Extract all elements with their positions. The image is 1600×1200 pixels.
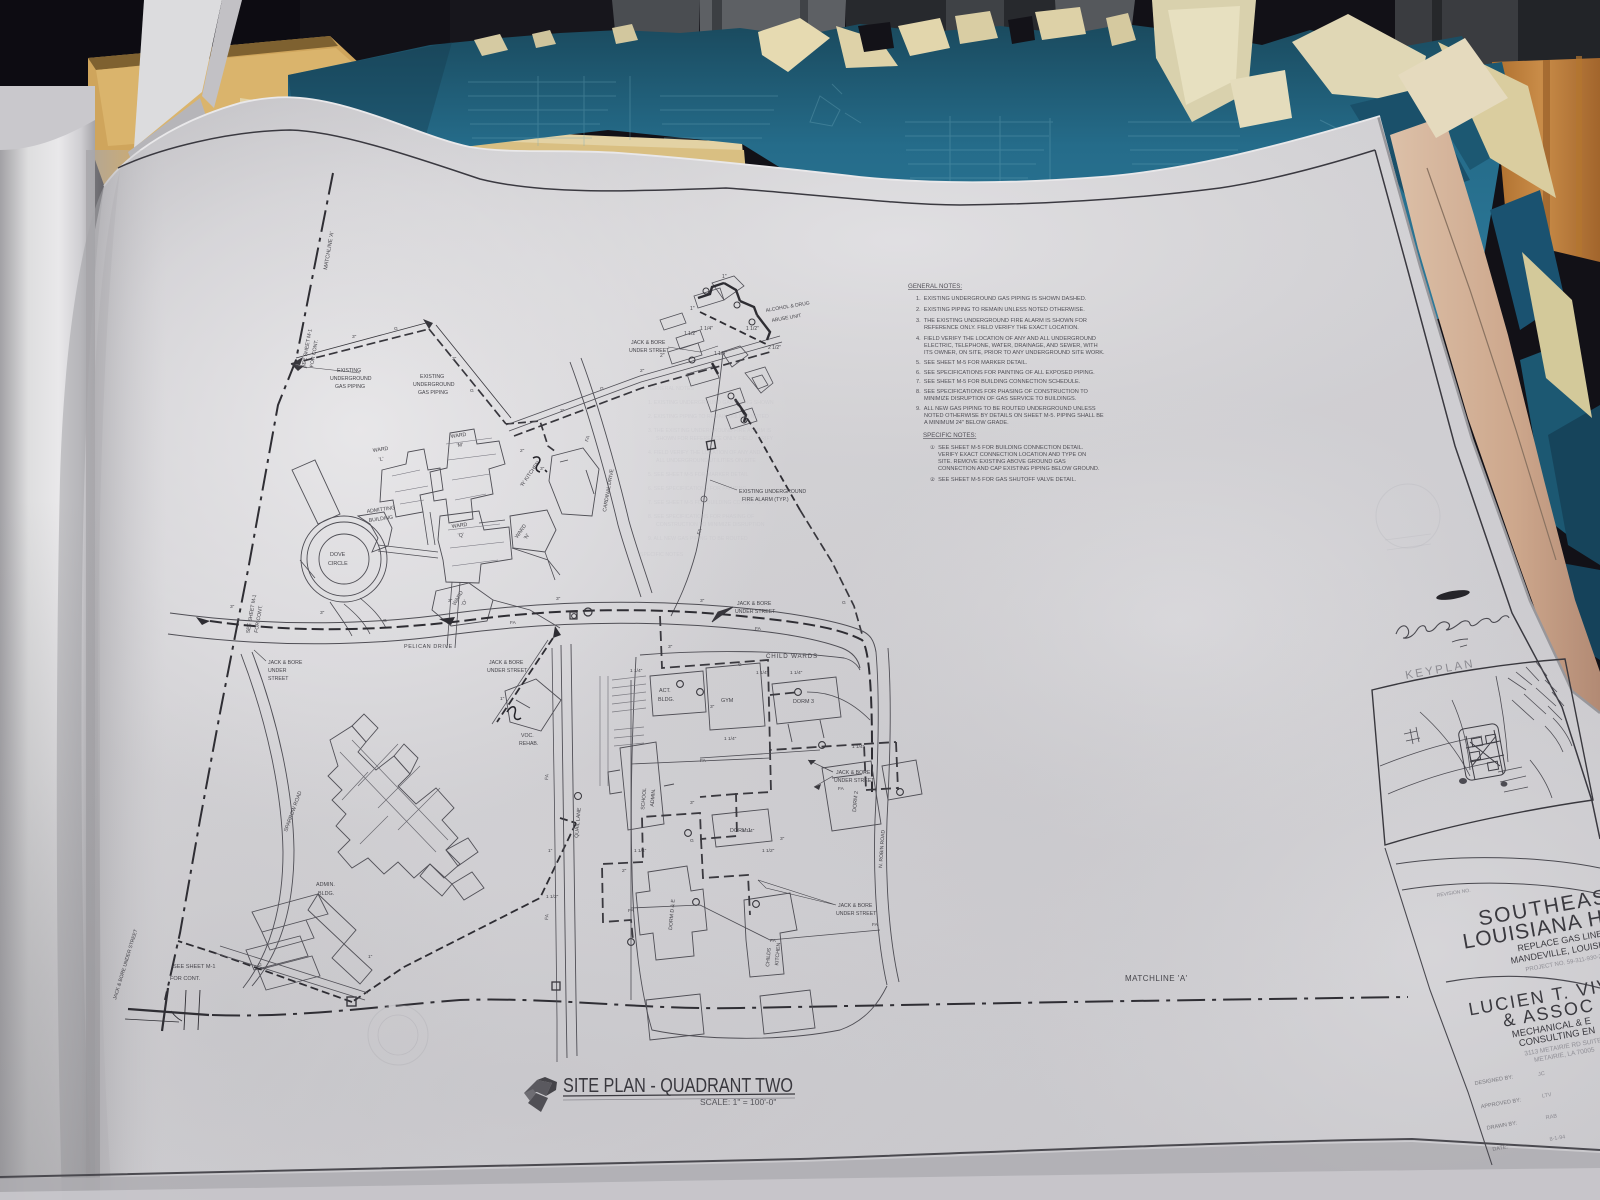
svg-text:CONNECTION AND CAP EXISTING PI: CONNECTION AND CAP EXISTING PIPING BELOW…	[938, 466, 1100, 472]
svg-text:6. SEE SPECIFICATIONS FOR PAI: 6. SEE SPECIFICATIONS FOR PAINTING OF AL…	[916, 370, 1095, 376]
svg-text:EXISTING: EXISTING	[420, 374, 444, 380]
svg-text:JACK & BORE: JACK & BORE	[631, 340, 666, 346]
svg-text:① SEE SHEET M-5 FOR BUILDING: ① SEE SHEET M-5 FOR BUILDING CONNECTION …	[930, 444, 1084, 451]
svg-text:8. SEE SPECIFICATIONS FOR PHA: 8. SEE SPECIFICATIONS FOR PHASING OF CON…	[916, 389, 1089, 395]
svg-text:9. ALL NEW GAS PIPING TO BE R: 9. ALL NEW GAS PIPING TO BE ROUTED UNDER…	[916, 406, 1096, 412]
svg-text:NOTED OTHERWISE BY DETAILS ON: NOTED OTHERWISE BY DETAILS ON SHEET M-5.…	[924, 413, 1104, 419]
svg-text:CHILD WARDS: CHILD WARDS	[766, 653, 818, 660]
svg-text:3": 3"	[556, 596, 561, 602]
svg-text:3": 3"	[320, 610, 325, 616]
svg-text:SPECIFIC NOTES:: SPECIFIC NOTES:	[923, 432, 977, 439]
svg-text:3": 3"	[700, 598, 705, 604]
svg-text:2": 2"	[520, 448, 525, 454]
svg-text:3": 3"	[448, 598, 453, 604]
svg-text:PELICAN DRIVE: PELICAN DRIVE	[404, 644, 453, 650]
svg-text:'L': 'L'	[378, 456, 384, 463]
svg-text:G: G	[738, 662, 742, 668]
svg-text:ACT.: ACT.	[659, 688, 671, 694]
svg-text:3": 3"	[452, 356, 457, 362]
svg-text:4. FIELD VERIFY THE LOCATION: 4. FIELD VERIFY THE LOCATION OF ANY AND …	[916, 336, 1096, 342]
svg-text:UNDER STREET: UNDER STREET	[836, 911, 877, 917]
svg-text:1 1/4": 1 1/4"	[742, 828, 755, 834]
svg-text:G: G	[383, 618, 387, 624]
svg-text:5. SEE SHEET M-5 FOR MARKER D: 5. SEE SHEET M-5 FOR MARKER DETAIL.	[916, 360, 1028, 366]
svg-text:3. THE EXISTING UNDERGROUND F: 3. THE EXISTING UNDERGROUND FIRE ALARM I…	[916, 318, 1087, 324]
svg-text:BLDG.: BLDG.	[658, 697, 674, 703]
svg-text:7. SEE SHEET M-5 FOR BUILDING: 7. SEE SHEET M-5 FOR BUILDING CONNECTION	[648, 500, 768, 506]
svg-text:GAS PIPING: GAS PIPING	[335, 384, 365, 390]
svg-text:UNDER STREET: UNDER STREET	[735, 609, 776, 615]
svg-text:A MINIMUM 24" BELOW GRADE.: A MINIMUM 24" BELOW GRADE.	[924, 420, 1009, 426]
svg-text:6. SEE SPECIFICATIONS FOR PAIN: 6. SEE SPECIFICATIONS FOR PAINTING	[648, 486, 746, 492]
svg-text:ADMIN.: ADMIN.	[316, 882, 335, 888]
svg-text:MATCHLINE 'A': MATCHLINE 'A'	[1125, 974, 1188, 983]
svg-text:FOR CONT.: FOR CONT.	[170, 976, 201, 982]
svg-text:GENERAL NOTES:: GENERAL NOTES:	[908, 283, 962, 290]
svg-text:1 1/2": 1 1/2"	[746, 326, 759, 332]
svg-text:FA: FA	[755, 626, 762, 632]
svg-text:1": 1"	[722, 274, 727, 280]
svg-text:2": 2"	[622, 868, 627, 874]
svg-text:SITE. REMOVE EXISTING ABOVE G: SITE. REMOVE EXISTING ABOVE GROUND GAS	[938, 459, 1066, 465]
svg-text:UNDERGROUND: UNDERGROUND	[413, 382, 455, 388]
svg-text:JACK & BORE: JACK & BORE	[737, 601, 772, 607]
svg-text:GYM: GYM	[721, 698, 734, 704]
svg-text:G: G	[842, 600, 846, 606]
svg-text:1 1/4": 1 1/4"	[700, 326, 713, 332]
svg-text:ELECTRIC, TELEPHONE, WATER, DR: ELECTRIC, TELEPHONE, WATER, DRAINAGE, AN…	[924, 343, 1098, 349]
svg-text:1": 1"	[548, 848, 553, 854]
svg-text:1 1/4": 1 1/4"	[852, 744, 865, 750]
svg-text:JACK & BORE: JACK & BORE	[268, 660, 303, 666]
svg-text:3": 3"	[230, 604, 235, 610]
svg-text:1 1/4": 1 1/4"	[724, 736, 737, 742]
svg-text:UNDER STREET: UNDER STREET	[629, 348, 670, 354]
svg-text:3": 3"	[540, 466, 545, 472]
svg-text:1. EXISTING UNDERGROUND GAS P: 1. EXISTING UNDERGROUND GAS PIPING IS SH…	[916, 296, 1087, 302]
svg-text:GENERAL NOTES: GENERAL NOTES	[650, 386, 694, 392]
svg-text:VERIFY EXACT CONNECTION LOCATI: VERIFY EXACT CONNECTION LOCATION AND TYP…	[938, 452, 1086, 458]
svg-text:ITS OWNER, ON SITE, PRIOR TO A: ITS OWNER, ON SITE, PRIOR TO ANY UNDERGR…	[924, 350, 1105, 356]
svg-text:1": 1"	[500, 696, 505, 702]
svg-text:1": 1"	[368, 954, 373, 960]
svg-text:VOC.: VOC.	[521, 733, 534, 739]
svg-text:FA: FA	[770, 938, 777, 944]
svg-text:8. SEE SPECIFICATIONS FOR PHAS: 8. SEE SPECIFICATIONS FOR PHASING OF	[648, 514, 754, 520]
svg-text:CONSTRUCTION TO MINIMIZE DISRU: CONSTRUCTION TO MINIMIZE DISRUPTION	[656, 522, 765, 528]
svg-text:STREET: STREET	[268, 676, 289, 682]
svg-text:'M': 'M'	[456, 442, 463, 449]
svg-text:JACK & BORE: JACK & BORE	[836, 770, 871, 776]
svg-text:4. FIELD VERIFY THE LOCATION O: 4. FIELD VERIFY THE LOCATION OF ANY AND	[648, 450, 761, 456]
svg-text:1 1/4": 1 1/4"	[634, 848, 647, 854]
svg-text:1 1/4": 1 1/4"	[790, 670, 803, 676]
svg-text:SCALE: 1" = 100'-0": SCALE: 1" = 100'-0"	[700, 1097, 776, 1107]
svg-text:G: G	[394, 326, 398, 332]
svg-text:1 1/2": 1 1/2"	[546, 894, 559, 900]
svg-text:② SEE SHEET M-5 FOR GAS SHUTO: ② SEE SHEET M-5 FOR GAS SHUTOFF VALVE DE…	[930, 476, 1077, 483]
svg-text:3": 3"	[780, 836, 785, 842]
svg-text:SEE SHEET M-1: SEE SHEET M-1	[173, 964, 215, 970]
svg-text:MINIMIZE DISRUPTION OF GAS SER: MINIMIZE DISRUPTION OF GAS SERVICE TO BU…	[924, 396, 1077, 402]
svg-text:1": 1"	[690, 306, 695, 312]
svg-text:GAS PIPING: GAS PIPING	[418, 390, 448, 396]
svg-text:1 1/2": 1 1/2"	[762, 848, 775, 854]
svg-text:G: G	[690, 838, 694, 844]
svg-text:REHAB.: REHAB.	[519, 741, 538, 747]
svg-text:FA: FA	[872, 922, 879, 928]
svg-text:UNDER: UNDER	[268, 668, 287, 674]
svg-text:9. ALL NEW GAS PIPING TO BE RO: 9. ALL NEW GAS PIPING TO BE ROUTED	[648, 536, 748, 542]
svg-text:'Q': 'Q'	[457, 532, 464, 539]
svg-text:3": 3"	[352, 334, 357, 340]
svg-text:SHOWN FOR REFERENCE ONLY FIELD: SHOWN FOR REFERENCE ONLY FIELD VERIFY	[656, 436, 774, 442]
svg-text:SPECIFIC NOTES: SPECIFIC NOTES	[640, 552, 684, 558]
svg-text:1 1/4": 1 1/4"	[630, 668, 643, 674]
svg-text:JC: JC	[1538, 1071, 1546, 1078]
svg-text:2": 2"	[640, 368, 645, 374]
svg-text:DOVE: DOVE	[330, 552, 346, 558]
svg-text:ALL UNDERGROUND UTILITIES ON S: ALL UNDERGROUND UTILITIES ON SITE	[656, 458, 756, 464]
svg-text:G: G	[470, 388, 474, 394]
svg-text:3. THE EXISTING UNDERGROUND FI: 3. THE EXISTING UNDERGROUND FIRE ALARM I…	[648, 428, 772, 434]
svg-text:JACK & BORE: JACK & BORE	[489, 660, 524, 666]
svg-text:5. SEE SHEET M-5 FOR MARKER DE: 5. SEE SHEET M-5 FOR MARKER DETAIL	[648, 472, 749, 478]
svg-text:FA: FA	[838, 786, 845, 792]
svg-text:JACK & BORE: JACK & BORE	[838, 903, 873, 909]
svg-text:2. EXISTING PIPING TO REMAIN U: 2. EXISTING PIPING TO REMAIN UNLESS NOTE…	[648, 414, 769, 420]
svg-text:1. EXISTING UNDERGROUND GAS PI: 1. EXISTING UNDERGROUND GAS PIPING SHOWN	[648, 400, 774, 406]
svg-text:2 1/2": 2 1/2"	[768, 345, 781, 351]
svg-text:3": 3"	[710, 704, 715, 710]
svg-text:3": 3"	[668, 644, 673, 650]
svg-text:REFERENCE ONLY. FIELD VERIFY: REFERENCE ONLY. FIELD VERIFY THE EXACT L…	[924, 325, 1079, 331]
svg-text:2. EXISTING PIPING TO REMAIN: 2. EXISTING PIPING TO REMAIN UNLESS NOTE…	[916, 307, 1085, 313]
svg-text:EXISTING UNDERGROUND: EXISTING UNDERGROUND	[739, 489, 806, 495]
svg-text:UNDER STREET: UNDER STREET	[487, 668, 528, 674]
svg-text:1 1/4": 1 1/4"	[756, 670, 769, 676]
svg-text:1 1/2": 1 1/2"	[684, 331, 697, 337]
svg-text:1 1/4": 1 1/4"	[714, 351, 727, 357]
svg-text:UNDER STREET: UNDER STREET	[834, 778, 875, 784]
svg-text:3": 3"	[690, 800, 695, 806]
svg-text:BLDG.: BLDG.	[318, 891, 334, 897]
svg-text:UNDERGROUND: UNDERGROUND	[330, 376, 372, 382]
svg-text:DORM 3: DORM 3	[793, 699, 814, 705]
svg-text:7. SEE SHEET M-5 FOR BUILDING: 7. SEE SHEET M-5 FOR BUILDING CONNECTION…	[916, 379, 1081, 385]
svg-text:CIRCLE: CIRCLE	[328, 561, 348, 567]
svg-text:FA: FA	[510, 620, 517, 626]
